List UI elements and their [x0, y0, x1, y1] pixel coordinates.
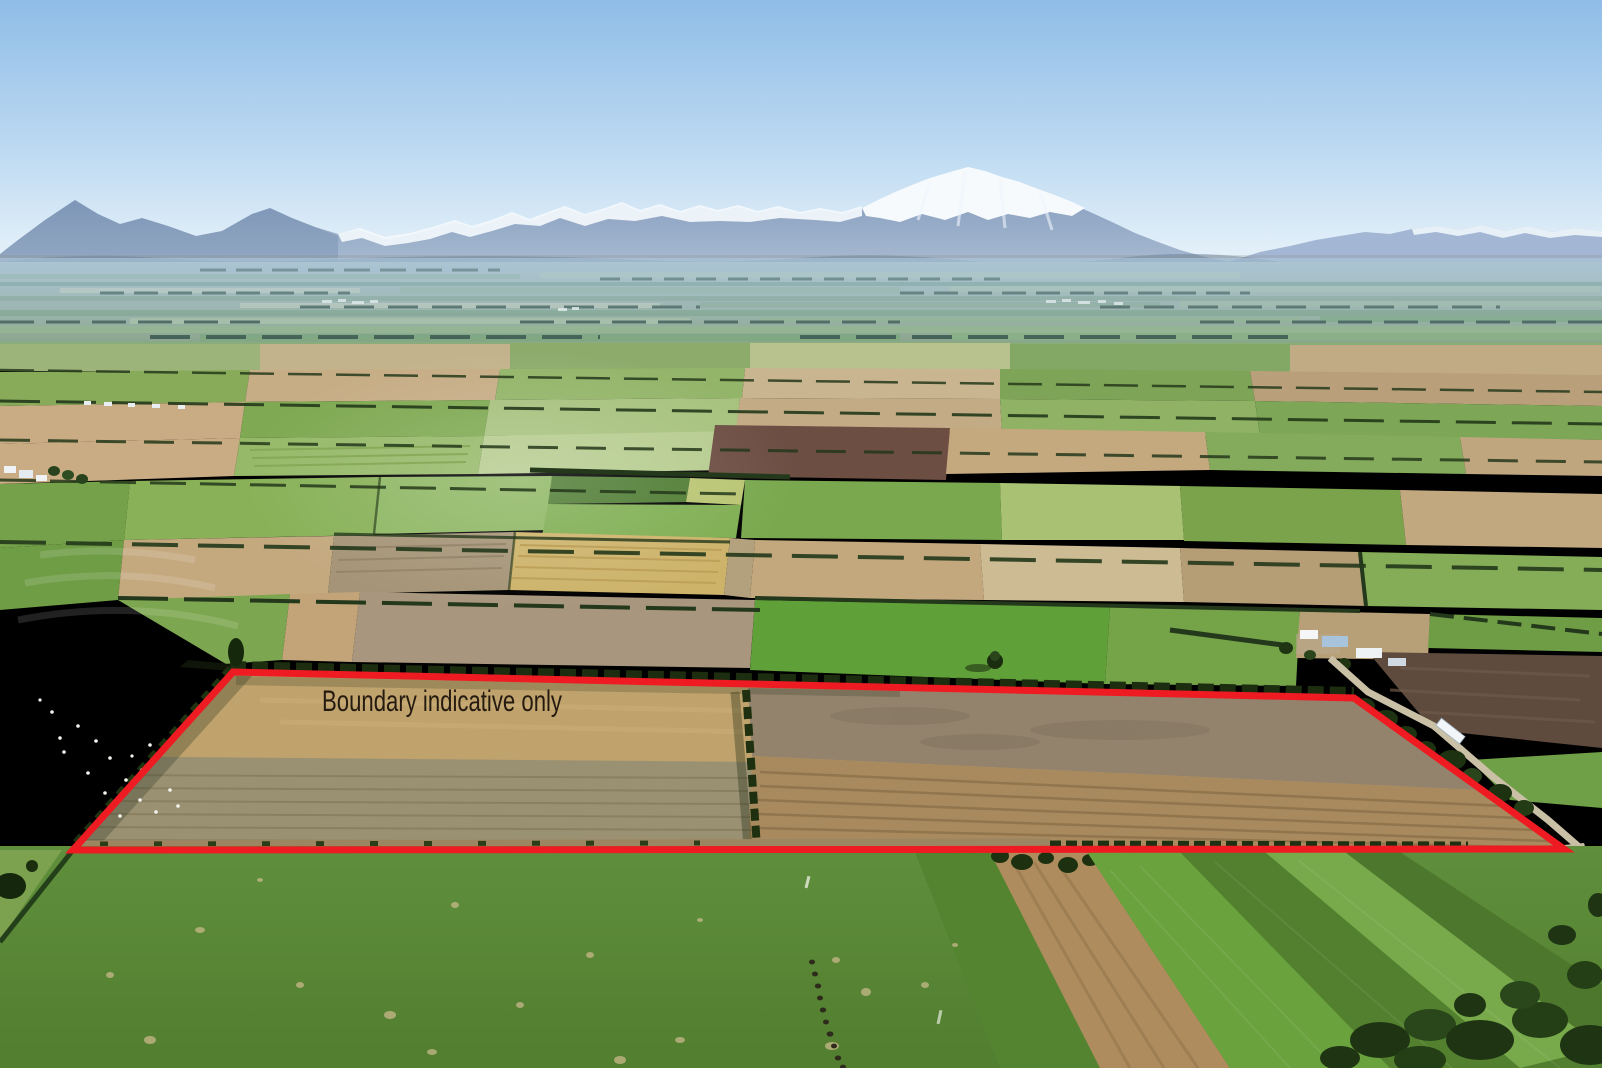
foreground-fields [0, 846, 1602, 1068]
distant-plains [0, 258, 1602, 350]
green-field-above-boundary [750, 600, 1110, 684]
farm-shed [1388, 658, 1406, 666]
farm-shed-blue-roof [1322, 636, 1348, 647]
farm-shed [1356, 648, 1382, 658]
aerial-photo: Boundary indicative only [0, 0, 1602, 1068]
farm-shed [1300, 630, 1318, 639]
atmospheric-haze [0, 258, 1602, 350]
bottom-track-strip [78, 842, 1050, 844]
boundary-label: Boundary indicative only [322, 685, 562, 718]
